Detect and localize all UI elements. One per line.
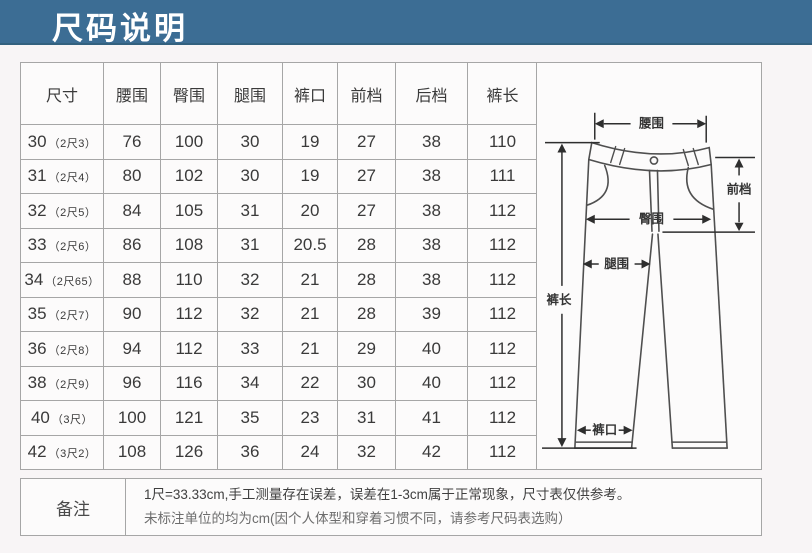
measurement-cell: 20.5: [283, 228, 338, 263]
measurement-cell: 105: [161, 194, 218, 229]
measurement-cell: 88: [104, 263, 161, 298]
table-row: 33（2尺6）861083120.52838112: [21, 228, 538, 263]
belt-loops: [611, 147, 699, 166]
size-cell: 34（2尺65）: [21, 263, 104, 298]
size-note: （2尺65）: [45, 276, 99, 288]
measurement-cell: 32: [338, 435, 396, 470]
table-row: 34（2尺65）8811032212838112: [21, 263, 538, 298]
measurement-cell: 100: [161, 125, 218, 160]
measurement-cell: 21: [283, 297, 338, 332]
measurement-cell: 19: [283, 125, 338, 160]
size-value: 30: [28, 132, 47, 151]
button-icon: [650, 157, 657, 164]
measurement-cell: 30: [338, 366, 396, 401]
measurement-cell: 112: [468, 297, 538, 332]
measurement-cell: 112: [468, 401, 538, 436]
measurement-cell: 102: [161, 159, 218, 194]
size-value: 40: [31, 408, 50, 427]
measurement-cell: 38: [396, 159, 468, 194]
measurement-cell: 84: [104, 194, 161, 229]
remarks-row: 备注 1尺=33.33cm,手工测量存在误差，误差在1-3cm属于正常现象，尺寸…: [21, 479, 762, 536]
size-cell: 36（2尺8）: [21, 332, 104, 367]
measurement-cell: 110: [161, 263, 218, 298]
measurement-cell: 39: [396, 297, 468, 332]
measurement-cell: 31: [218, 228, 283, 263]
measurement-cell: 76: [104, 125, 161, 160]
column-header-4: 裤口: [283, 63, 338, 125]
measurement-cell: 42: [396, 435, 468, 470]
table-row: 31（2尺4）8010230192738111: [21, 159, 538, 194]
measurement-cell: 27: [338, 125, 396, 160]
measurement-cell: 40: [396, 366, 468, 401]
measurement-cell: 30: [218, 159, 283, 194]
size-value: 34: [24, 270, 43, 289]
size-value: 32: [28, 201, 47, 220]
size-note: （2尺5）: [49, 207, 97, 219]
pants-diagram-svg: 腰围 裤长 前档 臀围 腿围 裤口: [537, 63, 761, 469]
size-note: （3尺2）: [49, 448, 97, 460]
size-table-body: 30（2尺3）761003019273811031（2尺4）8010230192…: [21, 125, 538, 470]
measurement-cell: 36: [218, 435, 283, 470]
measurement-cell: 34: [218, 366, 283, 401]
size-note: （2尺4）: [49, 172, 97, 184]
measurement-cell: 29: [338, 332, 396, 367]
table-row: 32（2尺5）8410531202738112: [21, 194, 538, 229]
pants-measurement-diagram: 腰围 裤长 前档 臀围 腿围 裤口: [536, 62, 762, 470]
size-cell: 32（2尺5）: [21, 194, 104, 229]
length-label: 裤长: [547, 292, 572, 307]
measurement-cell: 112: [161, 332, 218, 367]
measurement-cell: 126: [161, 435, 218, 470]
table-row: 30（2尺3）7610030192738110: [21, 125, 538, 160]
remarks-box: 备注 1尺=33.33cm,手工测量存在误差，误差在1-3cm属于正常现象，尺寸…: [20, 478, 762, 536]
left-pocket: [587, 165, 608, 205]
size-value: 38: [28, 373, 47, 392]
column-header-6: 后档: [396, 63, 468, 125]
size-table-header: 尺寸腰围臀围腿围裤口前档后档裤长: [21, 63, 538, 125]
measurement-cell: 108: [104, 435, 161, 470]
hip-label: 臀围: [639, 211, 664, 226]
measurement-cell: 38: [396, 194, 468, 229]
measurement-cell: 112: [161, 297, 218, 332]
page-title: 尺码说明: [0, 0, 812, 48]
measurement-cell: 21: [283, 332, 338, 367]
size-note: （3尺）: [52, 414, 93, 426]
column-header-5: 前档: [338, 63, 396, 125]
size-cell: 42（3尺2）: [21, 435, 104, 470]
column-header-0: 尺寸: [21, 63, 104, 125]
hem-label: 裤口: [592, 422, 617, 437]
size-guide-page: 尺码说明 尺寸腰围臀围腿围裤口前档后档裤长 30（2尺3）76100301927…: [0, 0, 812, 553]
measurement-cell: 38: [396, 263, 468, 298]
column-header-1: 腰围: [104, 63, 161, 125]
header-band: 尺码说明: [0, 0, 812, 45]
table-row: 42（3尺2）10812636243242112: [21, 435, 538, 470]
waist-label: 腰围: [638, 116, 664, 131]
header-row: 尺寸腰围臀围腿围裤口前档后档裤长: [21, 63, 538, 125]
measurement-cell: 28: [338, 263, 396, 298]
remarks-label: 备注: [21, 479, 126, 536]
measurement-cell: 32: [218, 263, 283, 298]
measurement-cell: 20: [283, 194, 338, 229]
measurement-cell: 27: [338, 194, 396, 229]
size-value: 42: [28, 442, 47, 461]
measurement-cell: 30: [218, 125, 283, 160]
size-cell: 31（2尺4）: [21, 159, 104, 194]
measurement-cell: 80: [104, 159, 161, 194]
table-row: 35（2尺7）9011232212839112: [21, 297, 538, 332]
remarks-line-1: 1尺=33.33cm,手工测量存在误差，误差在1-3cm属于正常现象，尺寸表仅供…: [144, 483, 753, 507]
measurement-cell: 23: [283, 401, 338, 436]
size-table: 尺寸腰围臀围腿围裤口前档后档裤长 30（2尺3）7610030192738110…: [20, 62, 538, 470]
column-header-2: 臀围: [161, 63, 218, 125]
measurement-cell: 35: [218, 401, 283, 436]
remarks-line-2: 未标注单位的均为cm(因个人体型和穿着习惯不同，请参考尺码表选购）: [144, 507, 753, 531]
remarks-text: 1尺=33.33cm,手工测量存在误差，误差在1-3cm属于正常现象，尺寸表仅供…: [126, 479, 762, 536]
measurement-cell: 27: [338, 159, 396, 194]
measurement-cell: 38: [396, 228, 468, 263]
measurement-cell: 28: [338, 228, 396, 263]
measurement-cell: 121: [161, 401, 218, 436]
front-rise-label: 前档: [727, 181, 752, 196]
table-row: 38（2尺9）9611634223040112: [21, 366, 538, 401]
measurement-cell: 112: [468, 263, 538, 298]
measurement-cell: 108: [161, 228, 218, 263]
measurement-cell: 94: [104, 332, 161, 367]
measurement-cell: 110: [468, 125, 538, 160]
measurement-cell: 22: [283, 366, 338, 401]
measurement-cell: 112: [468, 332, 538, 367]
size-cell: 35（2尺7）: [21, 297, 104, 332]
column-header-3: 腿围: [218, 63, 283, 125]
pants-outline: [575, 143, 727, 448]
measurement-cell: 32: [218, 297, 283, 332]
size-value: 36: [28, 339, 47, 358]
measurement-cell: 100: [104, 401, 161, 436]
column-header-7: 裤长: [468, 63, 538, 125]
measurement-cell: 40: [396, 332, 468, 367]
measurement-cell: 116: [161, 366, 218, 401]
measurement-cell: 112: [468, 435, 538, 470]
size-note: （2尺9）: [49, 379, 97, 391]
size-note: （2尺3）: [49, 138, 97, 150]
size-cell: 40（3尺）: [21, 401, 104, 436]
size-value: 31: [28, 166, 47, 185]
measurement-cell: 19: [283, 159, 338, 194]
measurement-cell: 111: [468, 159, 538, 194]
thigh-label: 腿围: [604, 256, 629, 271]
arrowheads: [557, 119, 743, 447]
measurement-cell: 90: [104, 297, 161, 332]
measurement-cell: 41: [396, 401, 468, 436]
measurement-cell: 38: [396, 125, 468, 160]
measurement-cell: 112: [468, 228, 538, 263]
measurement-cell: 28: [338, 297, 396, 332]
size-value: 35: [28, 304, 47, 323]
measurement-cell: 21: [283, 263, 338, 298]
measurement-cell: 112: [468, 366, 538, 401]
right-pocket: [687, 167, 713, 209]
size-note: （2尺8）: [49, 345, 97, 357]
measurement-cell: 31: [218, 194, 283, 229]
measurement-cell: 31: [338, 401, 396, 436]
measurement-cell: 112: [468, 194, 538, 229]
table-row: 40（3尺）10012135233141112: [21, 401, 538, 436]
measurement-cell: 96: [104, 366, 161, 401]
measurement-cell: 33: [218, 332, 283, 367]
measurement-cell: 86: [104, 228, 161, 263]
size-note: （2尺6）: [49, 241, 97, 253]
table-row: 36（2尺8）9411233212940112: [21, 332, 538, 367]
size-note: （2尺7）: [49, 310, 97, 322]
measurement-cell: 24: [283, 435, 338, 470]
size-cell: 38（2尺9）: [21, 366, 104, 401]
size-cell: 30（2尺3）: [21, 125, 104, 160]
size-value: 33: [28, 235, 47, 254]
size-cell: 33（2尺6）: [21, 228, 104, 263]
